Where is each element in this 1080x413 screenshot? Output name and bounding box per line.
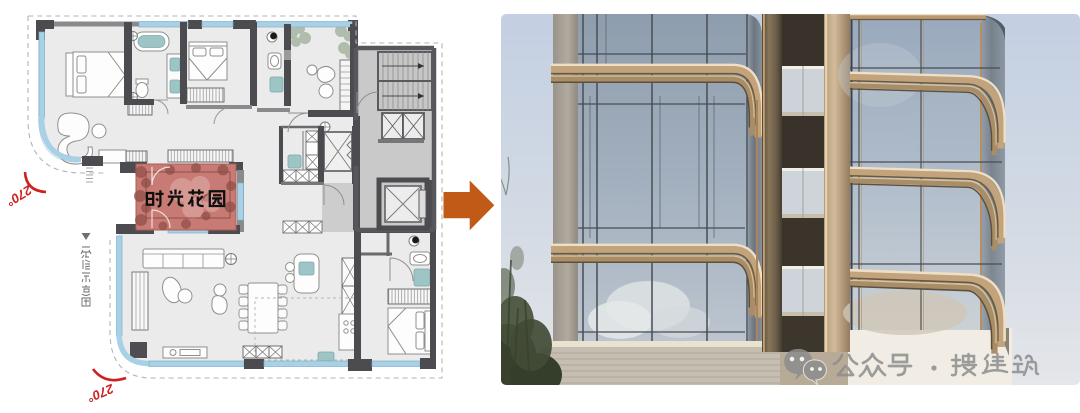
svg-text:270°: 270° [85, 381, 117, 406]
